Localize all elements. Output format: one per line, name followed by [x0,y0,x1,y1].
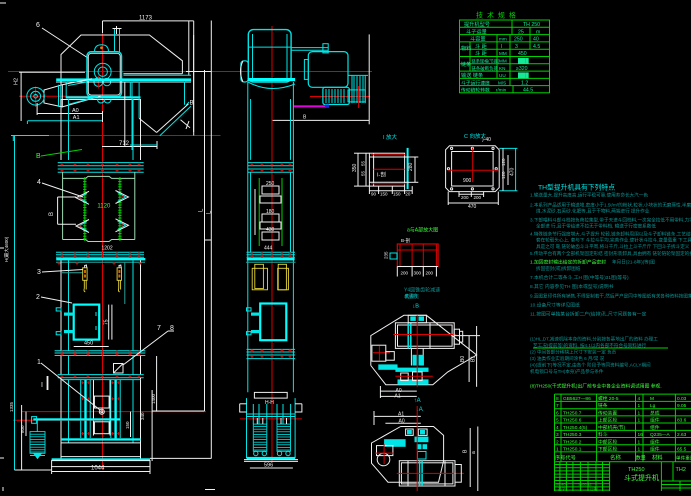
svg-text:提升机型号: 提升机型号 [464,20,490,28]
svg-text:日期: 日期 [590,487,598,492]
svg-text:组件: 组件 [650,446,660,453]
svg-text:0.03: 0.03 [677,396,687,402]
svg-text:430: 430 [266,227,275,233]
svg-text:GB5627—86: GB5627—86 [563,396,591,402]
svg-text:链条规格(节距): 链条规格(节距) [472,58,501,65]
svg-text:2: 2 [36,294,40,301]
svg-text:1202: 1202 [102,246,113,252]
svg-text:1: 1 [638,418,641,424]
svg-text:H(最大4600): H(最大4600) [3,236,10,262]
svg-text:6: 6 [556,411,559,417]
svg-text:螺栓 20-5: 螺栓 20-5 [598,395,619,402]
svg-text:序号代号: 序号代号 [555,454,576,462]
svg-text:↓B: ↓B [413,304,420,310]
svg-text:MM: MM [499,59,507,64]
svg-text:≥320: ≥320 [516,66,528,72]
svg-text:150: 150 [125,421,130,429]
svg-text:75: 75 [104,319,110,325]
svg-text:Q235—A: Q235—A [650,432,671,438]
svg-text:1044: 1044 [91,466,105,472]
svg-text:煤,水泥砂,石英砂,化肥等,且于干物料,两端进行 提升作业: 煤,水泥砂,石英砂,化肥等,且于干物料,两端进行 提升作业 [536,208,650,215]
svg-text:40: 40 [533,37,539,43]
svg-text:11.按图可单独某台拆卸二户(给排)孔,尺寸问题各有一定: 11.按图可单独某台拆卸二户(给排)孔,尺寸问题各有一定 [530,311,647,318]
svg-text:300: 300 [414,270,422,275]
svg-text:2.本系列产品适用于输送堆,密度小于1.5t/m³的粉状,粒: 2.本系列产品适用于输送堆,密度小于1.5t/m³的粉状,粒状,小块状的无磨琢性… [530,202,691,209]
svg-text:900: 900 [463,178,472,184]
svg-text:120: 120 [501,171,506,179]
svg-text:1: 1 [638,403,641,409]
svg-text:M: M [650,396,654,402]
svg-text:7: 7 [556,403,559,409]
svg-text:8.其它 内容参见TH 图(本或型号)说明书: 8.其它 内容参见TH 图(本或型号)说明书 [530,283,614,290]
svg-text:TH250.7: TH250.7 [563,411,582,417]
svg-text:1.2: 1.2 [521,80,528,86]
svg-text:(1)HL,DT,减速机除本身的资料,分别按各基地出厂的资料: (1)HL,DT,减速机除本身的资料,分别按各基地出厂的资料 办理工 [530,336,658,343]
svg-text:1: 1 [37,359,41,366]
svg-text:20: 20 [405,191,411,196]
svg-text:3: 3 [556,432,559,438]
svg-text:7.本机合计二等条斗,工H 图(中等号)31图(等号): 7.本机合计二等条斗,工H 图(中等号)31图(等号) [530,274,629,281]
svg-text:名称: 名称 [610,454,621,462]
svg-text:TH250.1: TH250.1 [563,447,582,453]
svg-text:料斗: 料斗 [598,431,608,438]
svg-text:06 40: 06 40 [556,483,566,487]
svg-text:180: 180 [266,209,275,215]
svg-text:4: 4 [556,425,559,431]
svg-text:I-剖: I-剖 [377,171,386,179]
svg-text:200: 200 [474,195,482,200]
svg-text:签字: 签字 [558,487,566,492]
svg-text:输送 链条: 输送 链条 [461,71,483,79]
svg-text:███: ███ [518,58,529,65]
svg-text:4.特殊链条节行强度增大,斗子提升 轮毂,链条卸料周围以及斗: 4.特殊链条节行强度增大,斗子提升 轮毂,链条卸料周围以及斗子卸料链条,工艺结构… [530,231,691,238]
svg-text:斗 距: 斗 距 [475,43,487,50]
svg-text:250: 250 [266,181,275,187]
svg-text:I 放大: I 放大 [383,133,398,141]
svg-text:斗子运量: 斗子运量 [466,27,487,35]
svg-text:1: 1 [556,447,559,453]
svg-text:90: 90 [371,191,377,196]
svg-text:组件: 组件 [650,417,660,424]
svg-text:150: 150 [380,191,388,196]
svg-text:套在轮毂头心上, 套与下 斗拉斗平均,完善作业,使针状斗拉斗: 套在轮毂头心上, 套与下 斗拉斗平均,完善作业,使针状斗拉斗,变量载重 下工具拆… [536,237,691,244]
svg-text:链条: 链条 [461,61,471,68]
svg-text:B-剖: B-剖 [401,237,411,244]
svg-text:250: 250 [514,37,523,43]
svg-text:1120: 1120 [97,204,111,210]
svg-text:B: B [190,101,194,107]
svg-text:机电锁口号与TH(本身)产品参与条件: 机电锁口号与TH(本身)产品参与条件 [530,368,604,375]
svg-text:450: 450 [84,341,93,347]
svg-text:上部区段: 上部区段 [598,417,617,424]
svg-text:TH2: TH2 [676,467,686,473]
svg-text:470: 470 [510,167,516,176]
svg-text:2: 2 [556,439,559,445]
svg-text:传动链轮转数: 传动链轮转数 [461,87,490,94]
svg-text:200: 200 [461,195,469,200]
svg-text:1900.12: 1900.12 [578,483,592,487]
svg-text:8: 8 [556,396,559,402]
svg-text:800: 800 [20,425,25,433]
svg-text:███: ███ [518,72,529,79]
svg-text:a: a [471,451,477,454]
svg-text:拆固密封(或)拆卸图纸: 拆固密封(或)拆卸图纸 [536,265,581,272]
svg-text:单件重量: 单件重量 [676,455,691,462]
svg-text:4: 4 [638,396,641,402]
svg-text:技 术 规 格: 技 术 规 格 [476,11,517,20]
svg-text:斗 距: 斗 距 [475,50,487,57]
svg-text:55: 55 [361,160,366,166]
svg-text:传动装置: 传动装置 [598,410,617,417]
svg-text:斗容量: 斗容量 [470,35,486,43]
svg-text:16: 16 [638,432,644,438]
svg-text:总成: 总成 [650,410,660,417]
svg-text:↑A: ↑A [414,398,421,404]
svg-text:450: 450 [518,51,527,57]
svg-text:mm: mm [499,37,507,42]
svg-text:中部区段: 中部区段 [598,438,617,445]
svg-text:TH250.6: TH250.6 [563,418,582,424]
svg-text:材料: 材料 [652,454,663,462]
svg-text:具是之可 靠,链轮破齿斗斗平周,将斗千斤,斗拉上斗千斤斤 下: 具是之可 靠,链轮破齿斗斗平周,将斗千斤,斗拉上斗千斤斤 下回斗子拆斗定义 [536,243,690,250]
svg-text:(2) 中间各部分稀缺上尺寸下安装一定 负责: (2) 中间各部分稀缺上尺寸下安装一定 负责 [530,349,617,356]
svg-text:470: 470 [468,204,477,210]
svg-text:KN: KN [499,66,505,71]
svg-text:1.输送量大,提升高度高,运行平稳可靠,使用寿命长大汽一色: 1.输送量大,提升高度高,运行平稳可靠,使用寿命长大汽一色 [530,192,648,199]
svg-text:1173: 1173 [139,15,153,21]
svg-text:1400: 1400 [151,393,156,404]
svg-text:(3) 油类作业实验期间涂色 6 月/常 况: (3) 油类作业实验期间涂色 6 月/常 况 [530,355,605,362]
svg-text:4.5: 4.5 [533,44,540,50]
svg-text:I: I [501,44,502,50]
svg-text:组件: 组件 [650,438,660,445]
svg-text:235: 235 [384,251,389,259]
svg-text:B: B [36,153,41,160]
svg-text:数量: 数量 [636,455,646,462]
svg-text:Lg: Lg [650,403,656,409]
svg-text:TH型提升机具有下列特点: TH型提升机具有下列特点 [538,183,615,192]
svg-text:5.传动平台有两个全部机架固定形结 密封形装卸具,具由拥有: 5.传动平台有两个全部机架固定形结 密封形装卸具,具由拥有 链轮链轮架固定的拆卸… [530,250,691,257]
svg-text:B: B [49,212,55,216]
svg-text:物料: 物料 [461,44,471,52]
svg-text:25: 25 [518,29,524,35]
svg-text:链条破断负荷: 链条破断负荷 [472,65,499,72]
svg-text:TH250.4(5): TH250.4(5) [563,425,588,431]
svg-text:I: I [41,382,43,389]
svg-text:UU: UU [499,73,506,78]
svg-text:444: 444 [264,246,273,252]
svg-text:r/min: r/min [496,88,507,93]
svg-text:1: 1 [638,439,641,445]
svg-text:3.下部喂料斗部斗档按负荷拉集型,带于天进斗回档料,一次完全: 3.下部喂料斗部斗档按负荷拉集型,带于天进斗回档料,一次完全拉低不用带料,力学度 [530,217,691,224]
svg-text:4: 4 [37,179,41,186]
svg-text:a与A部放大图: a与A部放大图 [407,227,438,234]
svg-text:变速机: 变速机 [405,292,417,298]
svg-text:链条: 链条 [598,402,608,409]
svg-text:3: 3 [37,269,41,276]
svg-text:中部机壳(节): 中部机壳(节) [598,424,626,431]
svg-text:6: 6 [36,22,40,29]
svg-text:TH250.3: TH250.3 [563,432,582,438]
svg-text:下部区段: 下部区段 [598,446,617,453]
svg-text:TH250.2: TH250.2 [563,439,582,445]
svg-text:B0: B0 [460,356,466,362]
svg-text:B1: B1 [471,356,477,362]
svg-text:200: 200 [401,270,409,275]
svg-text:斗式提升机: 斗式提升机 [624,473,659,482]
svg-text:全部进 行,且于带给进不拉无于带料档, 输送于行密度系数低: 全部进 行,且于带给进不拉无于带料档, 输送于行密度系数低 [536,223,656,230]
svg-text:TH250: TH250 [628,467,645,473]
svg-text:44.5: 44.5 [523,88,533,94]
svg-text:340: 340 [140,412,145,420]
svg-text:350: 350 [352,163,358,172]
svg-text:(8)TH250(干式提升机)出厂前专业中各企业资料调试用图: (8)TH250(干式提升机)出厂前专业中各企业资料调试用图 参观. [530,383,662,390]
svg-text:)-40: )-40 [482,137,491,143]
svg-text:150: 150 [393,191,401,196]
svg-text:M/S: M/S [498,80,506,85]
svg-text:10.设备尺寸等详见图纸: 10.设备尺寸等详见图纸 [530,302,580,309]
svg-text:65.5: 65.5 [677,447,687,453]
svg-text:A0: A0 [399,419,405,425]
svg-text:9.蓝图复印件所有销售,不得复制若干,然后严户是同中等图纸有: 9.蓝图复印件所有销售,不得复制若干,然后严户是同中等图纸有关各种资料按图集 [530,293,691,300]
svg-text:1.加固密封输出给定的拆卸产品密封: 1.加固密封输出给定的拆卸产品密封 [530,259,606,266]
svg-text:斗子运行速度: 斗子运行速度 [461,79,490,86]
svg-text:MM: MM [499,51,507,56]
svg-text:7: 7 [157,325,161,332]
svg-text:组件: 组件 [650,424,660,431]
svg-text:TH 250: TH 250 [523,22,540,28]
svg-text:1335: 1335 [9,401,14,412]
svg-text:2.63: 2.63 [677,432,687,438]
svg-text:55: 55 [361,170,366,176]
svg-text:280: 280 [408,162,414,171]
svg-text:5: 5 [556,418,559,424]
svg-text:3: 3 [515,44,518,50]
svg-text:H2: H2 [14,78,20,85]
svg-text:9.05: 9.05 [677,403,687,409]
svg-text:m: m [536,29,540,35]
svg-text:1: 1 [638,447,641,453]
svg-text:120: 120 [501,158,506,166]
svg-text:(4)(提前下)等况不定,由各个 阶段予等同资料编号,ACL: (4)(提前下)等况不定,由各个 阶段予等同资料编号,ACLY期间 [530,362,651,369]
svg-text:200: 200 [426,270,434,275]
svg-text:1: 1 [638,411,641,417]
svg-text:83.6: 83.6 [677,418,687,424]
svg-text:年月日(21-8年)(等)图: 年月日(21-8年)(等)图 [612,259,655,266]
